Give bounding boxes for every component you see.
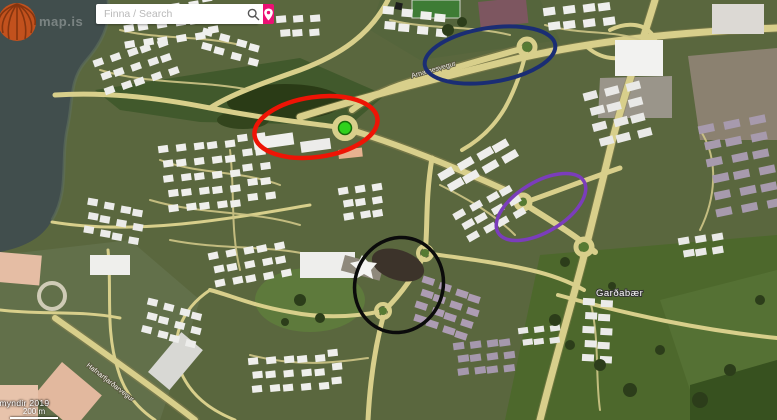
building — [327, 349, 338, 357]
logo-wordmark: map.is — [39, 14, 83, 29]
building — [168, 189, 179, 197]
building — [248, 357, 259, 365]
building — [237, 134, 248, 142]
building — [382, 6, 394, 15]
building — [293, 15, 304, 23]
building — [583, 3, 596, 13]
building — [230, 184, 241, 192]
scale-label: 200 m — [10, 407, 58, 416]
building — [583, 18, 596, 28]
building — [284, 355, 295, 363]
city-label: Garðabær — [596, 288, 643, 299]
building — [265, 370, 276, 378]
building — [548, 21, 561, 31]
building — [194, 142, 205, 150]
building — [181, 188, 192, 196]
building — [158, 145, 169, 153]
building — [283, 384, 294, 392]
building — [225, 140, 236, 148]
building — [247, 178, 258, 186]
building — [583, 298, 595, 306]
building — [242, 163, 253, 171]
building — [292, 29, 303, 37]
building — [194, 172, 205, 180]
building — [225, 155, 236, 163]
building — [181, 173, 192, 181]
search-button[interactable] — [243, 4, 263, 24]
locate-pin-button[interactable] — [263, 4, 274, 24]
building — [384, 21, 396, 30]
building — [242, 148, 253, 156]
building — [331, 377, 342, 385]
building — [176, 159, 187, 167]
building — [319, 382, 330, 390]
building — [199, 202, 210, 210]
building — [585, 340, 597, 348]
building — [603, 16, 616, 26]
location-pin-icon — [263, 8, 274, 21]
building — [401, 8, 413, 17]
app-logo[interactable] — [0, 1, 39, 43]
building — [598, 2, 611, 12]
scale-line — [10, 417, 58, 419]
building — [301, 369, 312, 377]
building — [563, 5, 576, 15]
scale-bar: 200 m — [10, 407, 70, 419]
building — [176, 143, 187, 151]
building — [283, 370, 294, 378]
building — [563, 20, 576, 30]
building — [582, 326, 594, 334]
building — [163, 159, 174, 167]
building — [280, 29, 291, 37]
building — [168, 204, 179, 212]
building — [212, 155, 223, 163]
building — [434, 13, 446, 22]
search-bar — [96, 4, 258, 24]
building — [260, 162, 271, 170]
building — [252, 385, 263, 393]
building — [230, 169, 241, 177]
building — [315, 354, 326, 362]
building — [194, 157, 205, 165]
building — [212, 171, 223, 179]
building — [310, 14, 321, 22]
search-icon — [247, 8, 260, 21]
map-app-window: Garðabær Arnarnesvegur Hafnarfjarðarvegu… — [0, 0, 777, 420]
building — [266, 356, 277, 364]
building — [332, 362, 343, 370]
building — [230, 199, 241, 207]
building — [420, 11, 432, 20]
building — [265, 191, 276, 199]
building — [597, 342, 609, 350]
building — [163, 174, 174, 182]
building — [186, 203, 197, 211]
building — [270, 384, 281, 392]
building — [252, 371, 263, 379]
search-input[interactable] — [96, 8, 243, 20]
building — [276, 15, 287, 23]
building — [585, 312, 597, 320]
building — [398, 23, 410, 32]
building — [217, 200, 228, 208]
building — [582, 354, 594, 362]
building — [297, 355, 308, 363]
building — [314, 368, 325, 376]
building — [199, 187, 210, 195]
building — [543, 7, 556, 17]
building — [247, 193, 258, 201]
building — [207, 141, 218, 149]
building — [212, 186, 223, 194]
building — [301, 383, 312, 391]
map-symbol-icon — [395, 2, 403, 10]
building — [598, 314, 610, 322]
building — [601, 300, 613, 308]
map-canvas[interactable]: Garðabær Arnarnesvegur Hafnarfjarðarvegu… — [0, 0, 777, 420]
building — [260, 177, 271, 185]
green-marker[interactable] — [339, 122, 352, 135]
building — [600, 328, 612, 336]
building — [417, 26, 429, 35]
building — [309, 28, 320, 36]
